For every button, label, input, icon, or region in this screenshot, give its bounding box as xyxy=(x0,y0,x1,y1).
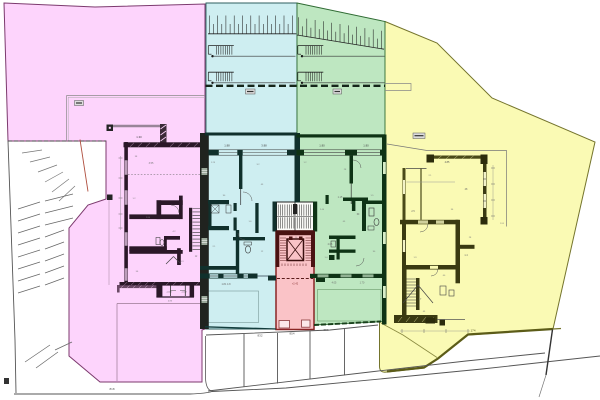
svg-text:856: 856 xyxy=(323,328,328,332)
svg-text:4.85: 4.85 xyxy=(445,161,450,164)
svg-text:1.70: 1.70 xyxy=(360,282,365,285)
svg-text:+2.42: +2.42 xyxy=(292,283,299,286)
svg-text:1.15: 1.15 xyxy=(338,196,343,199)
svg-text:+0.12: +0.12 xyxy=(181,291,187,293)
svg-text:832: 832 xyxy=(257,334,262,338)
svg-text:1.81 4.8: 1.81 4.8 xyxy=(221,283,231,286)
svg-text:1.88: 1.88 xyxy=(224,144,230,148)
svg-text:818: 818 xyxy=(109,387,114,391)
svg-text:2.05: 2.05 xyxy=(328,243,333,246)
svg-text:3.55: 3.55 xyxy=(149,162,154,165)
svg-text:3.88: 3.88 xyxy=(261,144,267,148)
svg-text:4.05: 4.05 xyxy=(332,282,337,285)
svg-text:1.80: 1.80 xyxy=(319,144,325,148)
svg-text:854: 854 xyxy=(289,332,294,336)
svg-text:1.30: 1.30 xyxy=(136,135,142,139)
svg-text:+0.10: +0.10 xyxy=(166,291,172,293)
svg-text:174: 174 xyxy=(470,329,475,333)
svg-text:1.80: 1.80 xyxy=(363,144,369,148)
